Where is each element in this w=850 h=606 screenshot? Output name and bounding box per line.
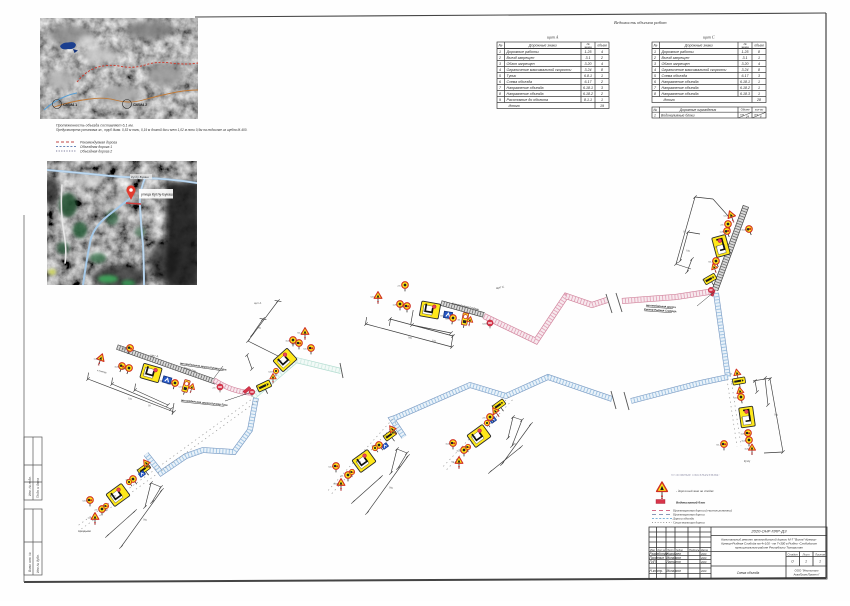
svg-text:Итого: Итого — [509, 104, 520, 108]
svg-text:Тупик: Тупик — [507, 74, 517, 78]
svg-text:1: 1 — [601, 98, 603, 102]
svg-text:4: 4 — [499, 68, 501, 72]
svg-text:Лист: Лист — [802, 553, 811, 557]
svg-text:объем: объем — [754, 44, 764, 48]
svg-text:Аркадьево: Аркадьево — [78, 529, 91, 533]
svg-text:ГИП: ГИП — [650, 560, 657, 564]
svg-text:Въезд запрещен: Въезд запрещен — [507, 56, 535, 60]
svg-text:Дорожные ограждения: Дорожные ограждения — [679, 108, 717, 112]
svg-text:2020: 2020 — [700, 553, 707, 556]
svg-text:УСЛОВНЫЕ ОБОЗНАЧЕНИЯ:: УСЛОВНЫЕ ОБОЗНАЧЕНИЯ: — [671, 473, 720, 477]
svg-text:1: 1 — [758, 80, 760, 84]
svg-text:Дорожные работы: Дорожные работы — [506, 50, 540, 54]
svg-text:Дорожные знаки: Дорожные знаки — [684, 44, 713, 48]
svg-text:6.17: 6.17 — [585, 80, 593, 84]
svg-text:№: № — [654, 108, 658, 112]
svg-text:2: 2 — [600, 56, 603, 60]
svg-text:Схема объезда: Схема объезда — [662, 74, 687, 78]
svg-text:6.18.1: 6.18.1 — [583, 86, 593, 90]
svg-text:6.18.1: 6.18.1 — [168, 384, 175, 386]
svg-text:5: 5 — [499, 74, 501, 78]
svg-text:Существующая дорога: Существующая дорога — [673, 521, 705, 525]
svg-text:Кутлу: Кутлу — [744, 460, 751, 463]
svg-text:3.20: 3.20 — [585, 62, 592, 66]
svg-text:8: 8 — [758, 50, 760, 54]
svg-text:Листов: Листов — [814, 553, 825, 557]
svg-text:муниципальном районе Республик: муниципальном районе Республики Татарста… — [735, 546, 803, 550]
svg-text:Латыпов: Латыпов — [666, 560, 681, 564]
svg-text:3: 3 — [654, 62, 656, 66]
svg-text:19: 19 — [600, 104, 604, 108]
svg-text:3.24: 3.24 — [742, 68, 749, 72]
svg-text:Схема объезда: Схема объезда — [507, 80, 532, 84]
svg-text:2020-ОНР-ПЛР-ДЗ: 2020-ОНР-ПЛР-ДЗ — [750, 529, 787, 534]
svg-text:Объездная дорога 1: Объездная дорога 1 — [80, 145, 112, 149]
svg-text:Дорожные работы: Дорожные работы — [661, 50, 695, 54]
svg-text:№: № — [499, 44, 503, 48]
svg-text:щит А: щит А — [547, 35, 559, 40]
svg-text:Въезд запрещен: Въезд запрещен — [662, 56, 690, 60]
svg-text:1: 1 — [654, 114, 656, 118]
svg-text:3: 3 — [758, 74, 760, 78]
svg-text:Мингазов: Мингазов — [667, 569, 682, 573]
svg-text:1: 1 — [601, 74, 603, 78]
svg-text:Направление объезда: Направление объезда — [662, 80, 699, 84]
svg-text:6.18.1: 6.18.1 — [740, 80, 750, 84]
svg-text:п.м: п.м — [740, 113, 744, 116]
svg-text:Обгон запрещен: Обгон запрещен — [662, 62, 690, 66]
svg-text:6.18.2: 6.18.2 — [740, 86, 750, 90]
svg-text:6: 6 — [654, 80, 656, 84]
svg-text:объем: объем — [597, 44, 607, 48]
svg-text:Направление объезда: Направление объезда — [507, 92, 544, 96]
svg-text:Подп. и дата: Подп. и дата — [36, 478, 40, 498]
svg-text:Ведомость объемов работ: Ведомость объемов работ — [614, 20, 667, 25]
svg-text:6.18.1: 6.18.1 — [334, 484, 341, 486]
svg-text:2020: 2020 — [700, 557, 707, 560]
svg-text:- дорожный знак на стойке: - дорожный знак на стойке — [676, 488, 714, 493]
svg-text:3: 3 — [601, 86, 603, 90]
svg-text:1: 1 — [499, 50, 501, 54]
svg-text:Инв.№ дубл.: Инв.№ дубл. — [36, 554, 40, 573]
svg-text:3.20: 3.20 — [742, 62, 749, 66]
svg-text:Объездная дорога 2: Объездная дорога 2 — [80, 149, 112, 153]
svg-text:Ограничение максимальной скоро: Ограничение максимальной скорости — [662, 68, 727, 72]
svg-text:6.18.1: 6.18.1 — [732, 382, 739, 384]
svg-text:кол-во: кол-во — [755, 108, 764, 112]
svg-text:8: 8 — [654, 92, 656, 96]
svg-text:Дорожные знаки: Дорожные знаки — [528, 44, 557, 48]
svg-text:1: 1 — [758, 86, 760, 90]
svg-text:5: 5 — [654, 74, 656, 78]
svg-text:Стадия: Стадия — [787, 553, 798, 557]
svg-text:6.18.1: 6.18.1 — [483, 324, 490, 326]
svg-text:Рекомендуемая дорога: Рекомендуемая дорога — [80, 140, 117, 144]
svg-text:Направление объезда: Направление объезда — [662, 86, 699, 90]
svg-text:щит С: щит С — [703, 35, 715, 40]
svg-text:2: 2 — [600, 92, 603, 96]
svg-text:Водоналивные блоки: Водоналивные блоки — [661, 114, 695, 118]
svg-text:Итого: Итого — [664, 98, 675, 102]
svg-text:СХЕМА 1: СХЕМА 1 — [63, 103, 77, 107]
svg-text:1: 1 — [758, 56, 760, 60]
svg-text:№: № — [654, 44, 658, 48]
svg-text:АкваТрансПроект": АкваТрансПроект" — [792, 573, 820, 577]
svg-text:2: 2 — [498, 56, 501, 60]
svg-text:28: 28 — [756, 98, 761, 102]
svg-text:8: 8 — [499, 92, 501, 96]
svg-text:6: 6 — [499, 80, 501, 84]
svg-text:6.18.1: 6.18.1 — [269, 372, 276, 374]
svg-text:1: 1 — [654, 50, 656, 54]
svg-text:1: 1 — [805, 560, 807, 564]
svg-text:Схема объезда: Схема объезда — [737, 571, 760, 575]
svg-text:Предусмотрена установка зн., т: Предусмотрена установка зн., труб диам. … — [56, 128, 248, 132]
svg-text:6.8.1: 6.8.1 — [584, 74, 592, 78]
svg-text:Водоналивной блок: Водоналивной блок — [675, 500, 705, 505]
svg-text:СХЕМА 2: СХЕМА 2 — [133, 103, 147, 107]
svg-text:2: 2 — [600, 80, 603, 84]
svg-text:4: 4 — [758, 62, 760, 66]
svg-text:4: 4 — [601, 62, 603, 66]
svg-text:1: 1 — [819, 560, 821, 564]
svg-text:Ограничение максимальной скоро: Ограничение максимальной скорости — [507, 68, 572, 72]
svg-text:Взам. инв. №: Взам. инв. № — [28, 552, 32, 572]
svg-text:6.18.2: 6.18.2 — [583, 92, 593, 96]
svg-text:3: 3 — [499, 62, 501, 66]
svg-text:Инв. № подл.: Инв. № подл. — [28, 476, 32, 496]
svg-text:3.24: 3.24 — [585, 68, 592, 72]
svg-text:Направление объезда: Направление объезда — [662, 92, 699, 96]
svg-text:Подпись: Подпись — [689, 548, 700, 552]
svg-text:Н.контр.: Н.контр. — [650, 569, 664, 573]
svg-text:1: 1 — [758, 92, 760, 96]
svg-text:9: 9 — [499, 98, 501, 102]
svg-text:4: 4 — [601, 50, 603, 54]
svg-text:Направление объезда: Направление объезда — [507, 86, 544, 90]
svg-text:знака: знака — [583, 45, 592, 49]
svg-text:6.18.1: 6.18.1 — [111, 496, 118, 498]
svg-text:8: 8 — [601, 68, 603, 72]
svg-text:2020: 2020 — [700, 561, 707, 564]
svg-text:8.1.1: 8.1.1 — [584, 98, 592, 102]
svg-text:4: 4 — [654, 68, 656, 72]
svg-text:3.1: 3.1 — [586, 56, 591, 60]
svg-text:Обгон запрещен: Обгон запрещен — [507, 62, 535, 66]
svg-text:2020: 2020 — [700, 570, 707, 573]
svg-text:Кутлу-Букаш: Кутлу-Букаш — [131, 175, 149, 179]
svg-text:1.25: 1.25 — [742, 50, 749, 54]
svg-text:2: 2 — [653, 56, 656, 60]
svg-text:24: 24 — [745, 115, 749, 119]
svg-text:щит А: щит А — [254, 301, 261, 305]
svg-text:Расстояние до объекта: Расстояние до объекта — [507, 98, 549, 102]
svg-text:8: 8 — [758, 68, 760, 72]
svg-text:6.18.3: 6.18.3 — [740, 92, 750, 96]
svg-text:Дата: Дата — [700, 548, 708, 552]
svg-text:6.17: 6.17 — [742, 74, 750, 78]
svg-text:улица Кутлу-Букаш: улица Кутлу-Букаш — [141, 193, 173, 197]
svg-text:Объем: Объем — [741, 108, 750, 112]
svg-text:1.25: 1.25 — [585, 50, 592, 54]
svg-text:3.1: 3.1 — [743, 56, 748, 60]
svg-text:знака: знака — [740, 45, 749, 49]
